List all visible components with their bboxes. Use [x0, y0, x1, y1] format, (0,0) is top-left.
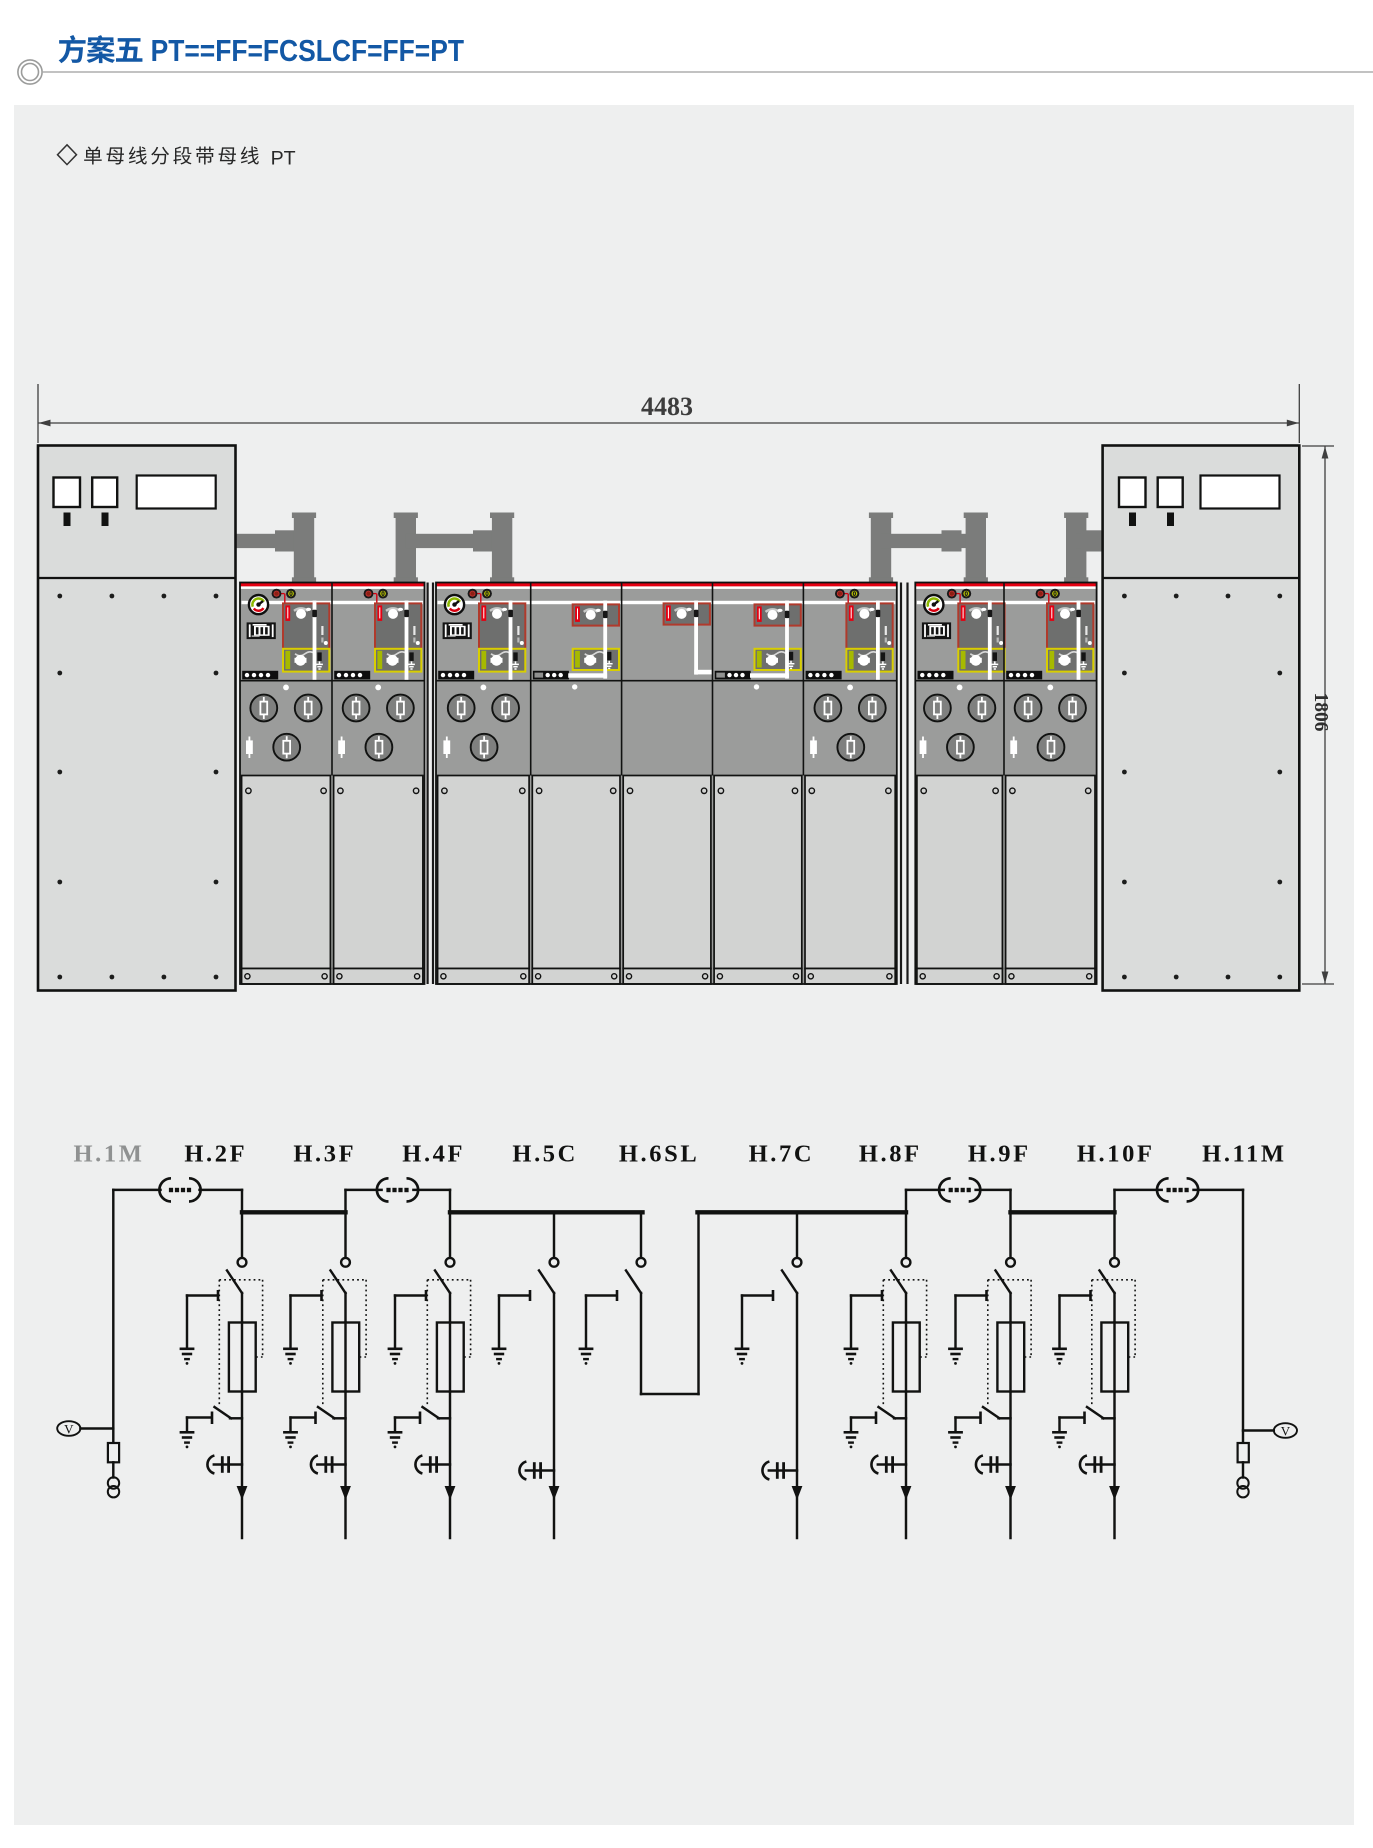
svg-text:1806: 1806	[1310, 693, 1331, 732]
svg-text:H.5C: H.5C	[512, 1141, 578, 1168]
svg-text:H.1M: H.1M	[74, 1141, 145, 1168]
svg-text:V: V	[64, 1422, 74, 1437]
svg-text:PT: PT	[271, 147, 296, 169]
svg-text:H.10F: H.10F	[1077, 1141, 1155, 1168]
svg-text:H.4F: H.4F	[402, 1141, 465, 1168]
svg-text:H.6SL: H.6SL	[619, 1141, 699, 1168]
svg-text:H.11M: H.11M	[1202, 1141, 1286, 1168]
svg-text:PT==FF=FCSLCF=FF=PT: PT==FF=FCSLCF=FF=PT	[151, 34, 465, 68]
svg-text:H.9F: H.9F	[968, 1141, 1031, 1168]
svg-text:V: V	[1281, 1424, 1291, 1439]
svg-text:H.8F: H.8F	[859, 1141, 922, 1168]
svg-text:H.7C: H.7C	[749, 1141, 815, 1168]
svg-text:H.3F: H.3F	[293, 1141, 356, 1168]
svg-text:H.2F: H.2F	[184, 1141, 247, 1168]
svg-text:4483: 4483	[641, 392, 693, 421]
